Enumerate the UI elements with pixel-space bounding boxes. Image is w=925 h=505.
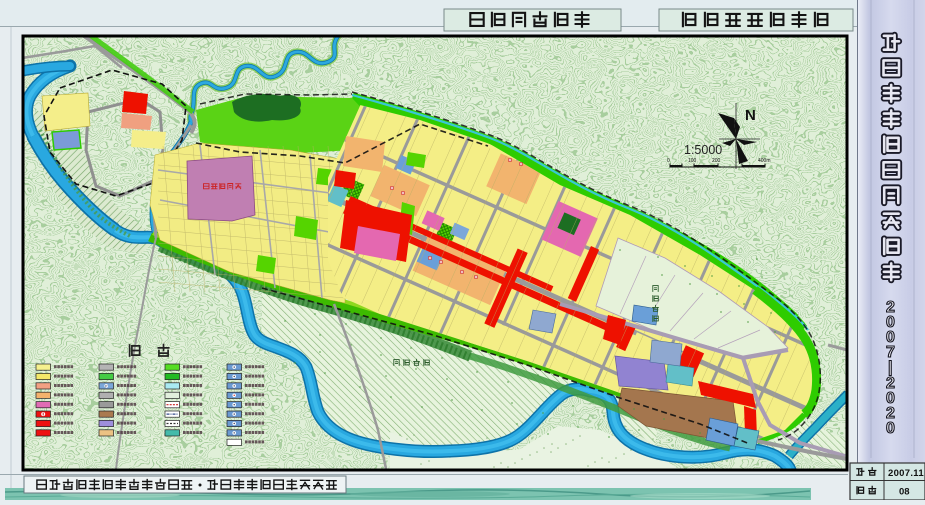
- svg-text:100: 100: [688, 158, 697, 164]
- svg-text:2007.11: 2007.11: [888, 468, 924, 479]
- svg-text:400m: 400m: [758, 158, 771, 164]
- svg-text:N: N: [745, 107, 756, 124]
- svg-text:1:5000: 1:5000: [684, 143, 722, 157]
- svg-text:08: 08: [899, 487, 910, 498]
- svg-text:200: 200: [712, 158, 721, 164]
- svg-text:0: 0: [667, 158, 670, 164]
